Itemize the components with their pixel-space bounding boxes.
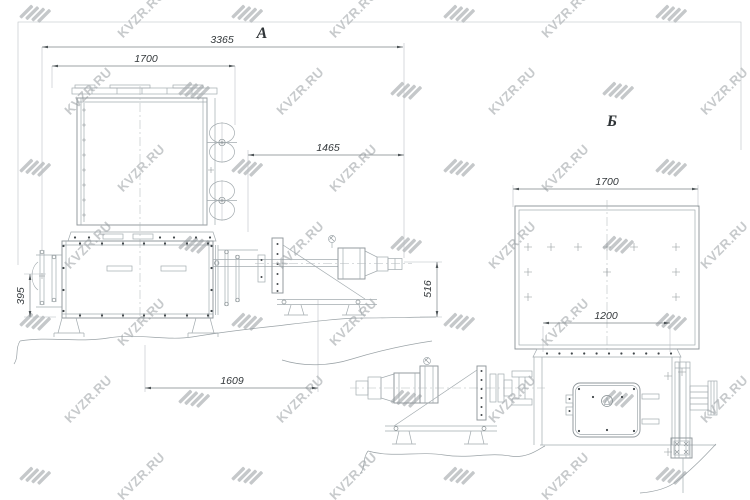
svg-text:1700: 1700 [595, 176, 619, 188]
watermark-text: KVZR.RU [114, 295, 167, 348]
svg-text:1465: 1465 [316, 142, 340, 154]
svg-text:KVZR.RU: KVZR.RU [61, 64, 114, 117]
svg-text:KVZR.RU: KVZR.RU [114, 449, 167, 500]
svg-text:KVZR.RU: KVZR.RU [697, 372, 750, 425]
watermark-text: KVZR.RU [697, 372, 750, 425]
technical-drawing: KVZR.RUKVZR.RUKVZR.RUKVZR.RUKVZR.RUKVZR.… [0, 0, 750, 500]
svg-text:KVZR.RU: KVZR.RU [485, 64, 538, 117]
watermark-text: KVZR.RU [326, 449, 379, 500]
watermark-logo [390, 229, 422, 261]
dim-overall-length-a: 3365 [42, 34, 404, 258]
watermark-logo [231, 460, 263, 492]
watermark-text: KVZR.RU [538, 295, 591, 348]
legs-and-ground-a [14, 317, 436, 365]
watermark-logo [19, 306, 51, 338]
filter-box [77, 86, 215, 324]
watermark-text: KVZR.RU [273, 64, 326, 117]
svg-text:516: 516 [422, 280, 434, 298]
watermark-text: KVZR.RU [326, 295, 379, 348]
watermark-logo [655, 0, 687, 30]
watermark-text: KVZR.RU [114, 449, 167, 500]
watermark-text: KVZR.RU [61, 372, 114, 425]
box-b: 1200 [515, 200, 699, 445]
view-b: Б 1700 1200 [350, 113, 717, 493]
svg-text:KVZR.RU: KVZR.RU [326, 295, 379, 348]
watermark-logo [19, 0, 51, 30]
watermark-text: KVZR.RU [538, 141, 591, 194]
watermark-text: KVZR.RU [485, 64, 538, 117]
watermark-logo [602, 75, 634, 107]
fan-top [207, 122, 237, 163]
svg-text:KVZR.RU: KVZR.RU [538, 0, 591, 41]
view-b-label: Б [606, 113, 617, 130]
svg-text:KVZR.RU: KVZR.RU [538, 141, 591, 194]
watermark-logo [443, 152, 475, 184]
watermark-logo [443, 0, 475, 30]
watermark-logo [655, 460, 687, 492]
svg-text:KVZR.RU: KVZR.RU [326, 449, 379, 500]
drive-assembly-a [255, 236, 412, 316]
reference-frame [18, 22, 741, 265]
watermark-logo [231, 152, 263, 184]
svg-text:KVZR.RU: KVZR.RU [485, 218, 538, 271]
svg-text:KVZR.RU: KVZR.RU [61, 372, 114, 425]
watermark-text: KVZR.RU [538, 0, 591, 41]
svg-text:1700: 1700 [134, 53, 158, 65]
svg-text:KVZR.RU: KVZR.RU [326, 0, 379, 41]
watermark-logo [390, 75, 422, 107]
svg-text:1609: 1609 [220, 375, 244, 387]
view-a-label: А [256, 25, 268, 42]
svg-text:KVZR.RU: KVZR.RU [697, 64, 750, 117]
watermark-text: KVZR.RU [697, 64, 750, 117]
svg-text:KVZR.RU: KVZR.RU [273, 64, 326, 117]
svg-text:KVZR.RU: KVZR.RU [697, 218, 750, 271]
drawing-sheet: KVZR.RUKVZR.RUKVZR.RUKVZR.RUKVZR.RUKVZR.… [0, 0, 750, 500]
watermark-text: KVZR.RU [114, 0, 167, 41]
watermark-text: KVZR.RU [273, 372, 326, 425]
watermark-logo [19, 460, 51, 492]
svg-text:3365: 3365 [210, 34, 234, 46]
svg-text:KVZR.RU: KVZR.RU [273, 372, 326, 425]
svg-text:1200: 1200 [594, 310, 618, 322]
watermark-text: KVZR.RU [485, 218, 538, 271]
watermark-logo [655, 152, 687, 184]
door-panel [540, 383, 716, 445]
dim-drive-height-a: 516 [404, 262, 442, 317]
svg-text:KVZR.RU: KVZR.RU [538, 295, 591, 348]
left-lever [32, 250, 62, 307]
watermark-logo [655, 306, 687, 338]
watermark-text: KVZR.RU [326, 0, 379, 41]
svg-text:KVZR.RU: KVZR.RU [114, 0, 167, 41]
fan-bottom [207, 180, 237, 221]
dim-left-height-a: 395 [15, 274, 56, 317]
watermark-logo [602, 383, 634, 415]
view-a: А 3365 1700 1465 395 [14, 25, 442, 392]
watermark-logo [231, 306, 263, 338]
dim-drive-span-a: 1465 [248, 142, 404, 232]
hole-crosses [524, 243, 680, 301]
watermark-logo [178, 383, 210, 415]
drive-assembly-b [350, 358, 545, 475]
svg-text:KVZR.RU: KVZR.RU [538, 449, 591, 500]
watermark-text: KVZR.RU [114, 141, 167, 194]
watermark-logo [443, 306, 475, 338]
watermark-text: KVZR.RU [538, 449, 591, 500]
watermark-logo [19, 152, 51, 184]
svg-text:KVZR.RU: KVZR.RU [114, 141, 167, 194]
watermark-text: KVZR.RU [61, 64, 114, 117]
svg-text:KVZR.RU: KVZR.RU [114, 295, 167, 348]
svg-text:395: 395 [15, 287, 27, 305]
watermark-text: KVZR.RU [697, 218, 750, 271]
watermark-logo [443, 460, 475, 492]
